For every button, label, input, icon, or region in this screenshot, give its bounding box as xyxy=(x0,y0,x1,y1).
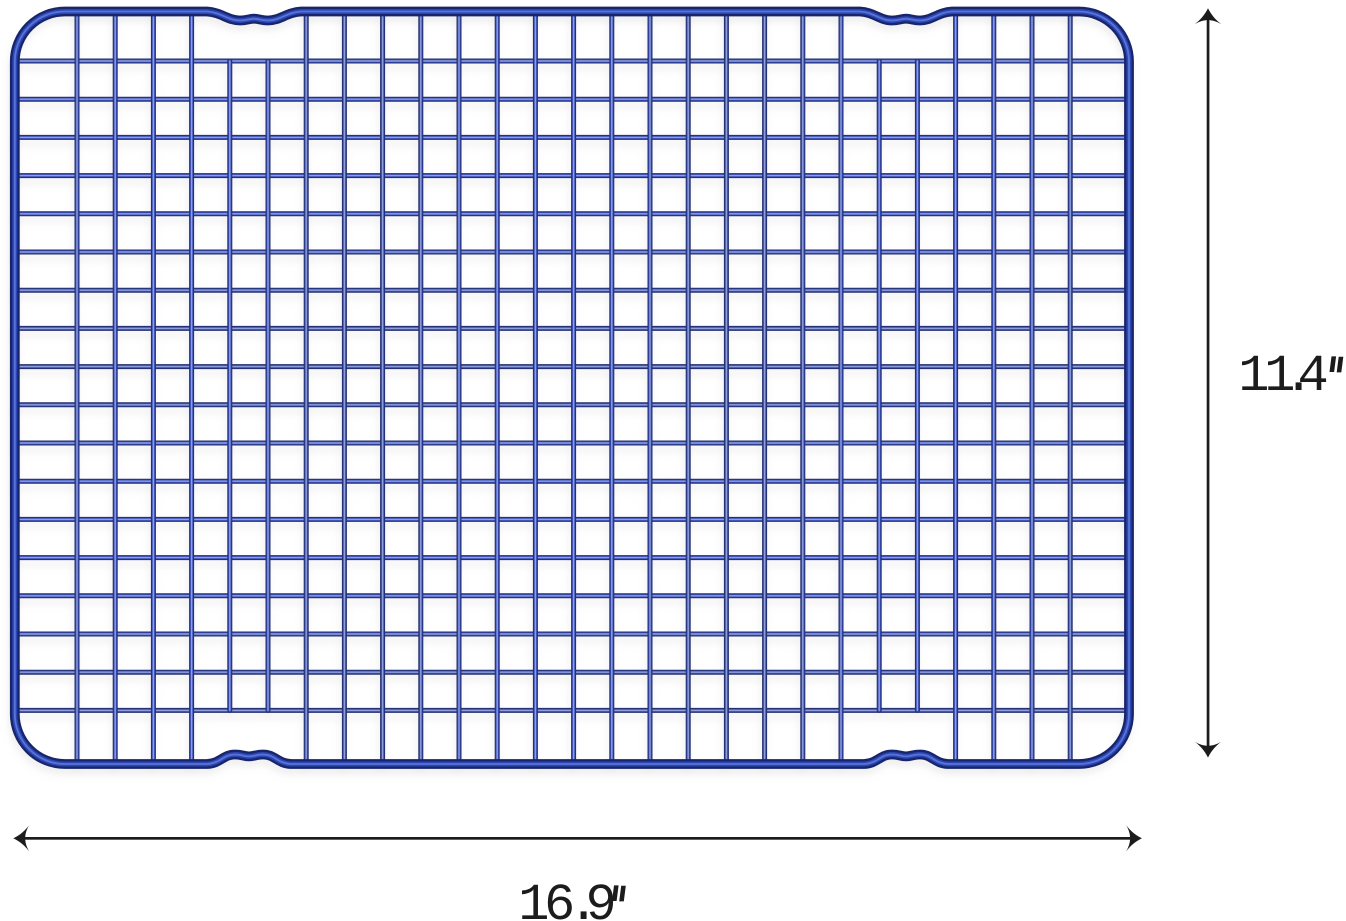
svg-text:4: 4 xyxy=(1298,347,1329,406)
svg-text:9: 9 xyxy=(586,876,617,921)
